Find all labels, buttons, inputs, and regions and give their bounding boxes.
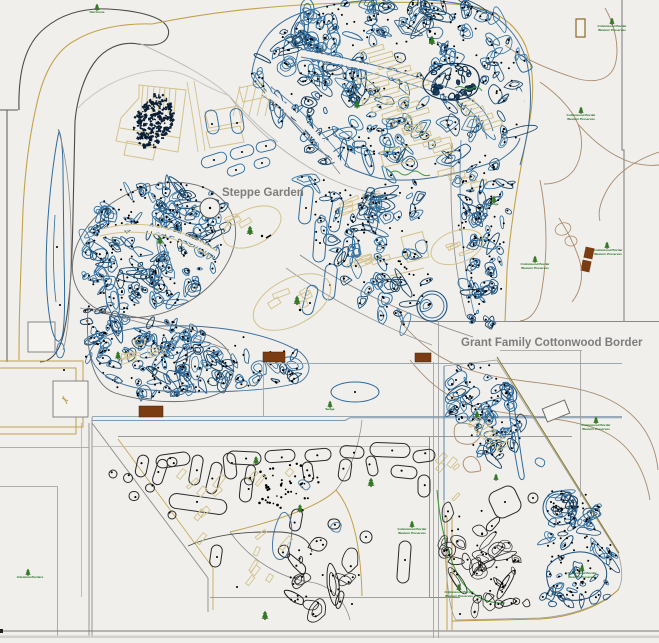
svg-text:Western Preserves: Western Preserves (445, 594, 473, 598)
svg-text:Western Preserves: Western Preserves (582, 427, 610, 431)
svg-text:Sedge: Sedge (325, 407, 335, 411)
svg-text:Western Preserves: Western Preserves (521, 266, 549, 270)
svg-text:Western Preserves: Western Preserves (568, 575, 596, 579)
svg-text:Oat Grove: Oat Grove (90, 10, 105, 14)
svg-text:Western Preserves: Western Preserves (398, 531, 426, 535)
svg-text:Western Preserves: Western Preserves (594, 252, 622, 256)
svg-text:Sedge: Sedge (489, 202, 499, 206)
svg-text:Western Preserves: Western Preserves (567, 117, 595, 121)
svg-text:Artemisia Borders: Artemisia Borders (17, 575, 44, 579)
svg-text:Grant Family Cottonwood Border: Grant Family Cottonwood Border (461, 337, 643, 349)
svg-text:Western Preserves: Western Preserves (598, 28, 626, 32)
svg-text:Steppe Garden: Steppe Garden (222, 187, 304, 199)
